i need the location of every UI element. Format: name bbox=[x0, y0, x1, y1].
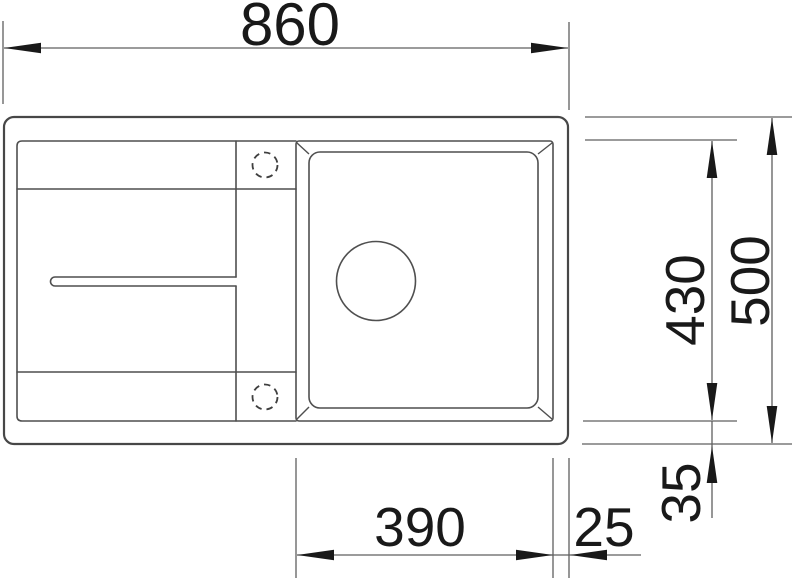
dim-label-overall-depth: 500 bbox=[719, 235, 781, 327]
drain-groove bbox=[51, 277, 237, 286]
dim-label-overall-width: 860 bbox=[240, 0, 340, 58]
technical-drawing-canvas: 860 500 430 35 390 25 bbox=[0, 0, 800, 582]
arrow-up-icon bbox=[707, 141, 718, 178]
bowl-corner-chamfer-top-left bbox=[297, 143, 309, 154]
bowl-corner-chamfer-top-right bbox=[538, 143, 552, 154]
tap-hole-bottom bbox=[253, 385, 278, 410]
dim-label-right-offset: 25 bbox=[573, 496, 634, 558]
arrow-left-icon bbox=[297, 550, 334, 561]
dimension-overall-width: 860 bbox=[3, 0, 569, 110]
arrow-right-icon bbox=[516, 550, 553, 561]
bowl-inner-edge bbox=[309, 152, 538, 408]
drain-hole bbox=[337, 242, 416, 321]
tap-hole-top bbox=[253, 153, 278, 178]
bowl-corner-chamfer-bottom-right bbox=[538, 407, 552, 419]
arrow-left-icon bbox=[4, 43, 41, 54]
arrow-right-icon bbox=[531, 43, 568, 54]
arrow-up-icon bbox=[767, 118, 778, 155]
bowl-corner-chamfer-bottom-left bbox=[297, 407, 309, 419]
dimension-bowl-width: 390 25 bbox=[296, 458, 641, 578]
dim-label-bottom-offset: 35 bbox=[650, 462, 712, 523]
sink-outer-edge bbox=[4, 117, 568, 444]
arrow-down-icon bbox=[707, 383, 718, 420]
arrow-down-icon bbox=[767, 406, 778, 443]
dim-label-bowl-depth: 430 bbox=[654, 254, 716, 346]
bowl-outer-rim bbox=[296, 141, 553, 421]
sink-body bbox=[4, 117, 568, 444]
dim-label-bowl-width: 390 bbox=[374, 496, 466, 558]
sink-dimension-drawing: 860 500 430 35 390 25 bbox=[0, 0, 800, 582]
dimension-bottom-offset: 35 bbox=[650, 421, 717, 524]
drainboard-outline bbox=[17, 141, 296, 421]
dimension-bowl-depth: 430 bbox=[583, 140, 737, 421]
